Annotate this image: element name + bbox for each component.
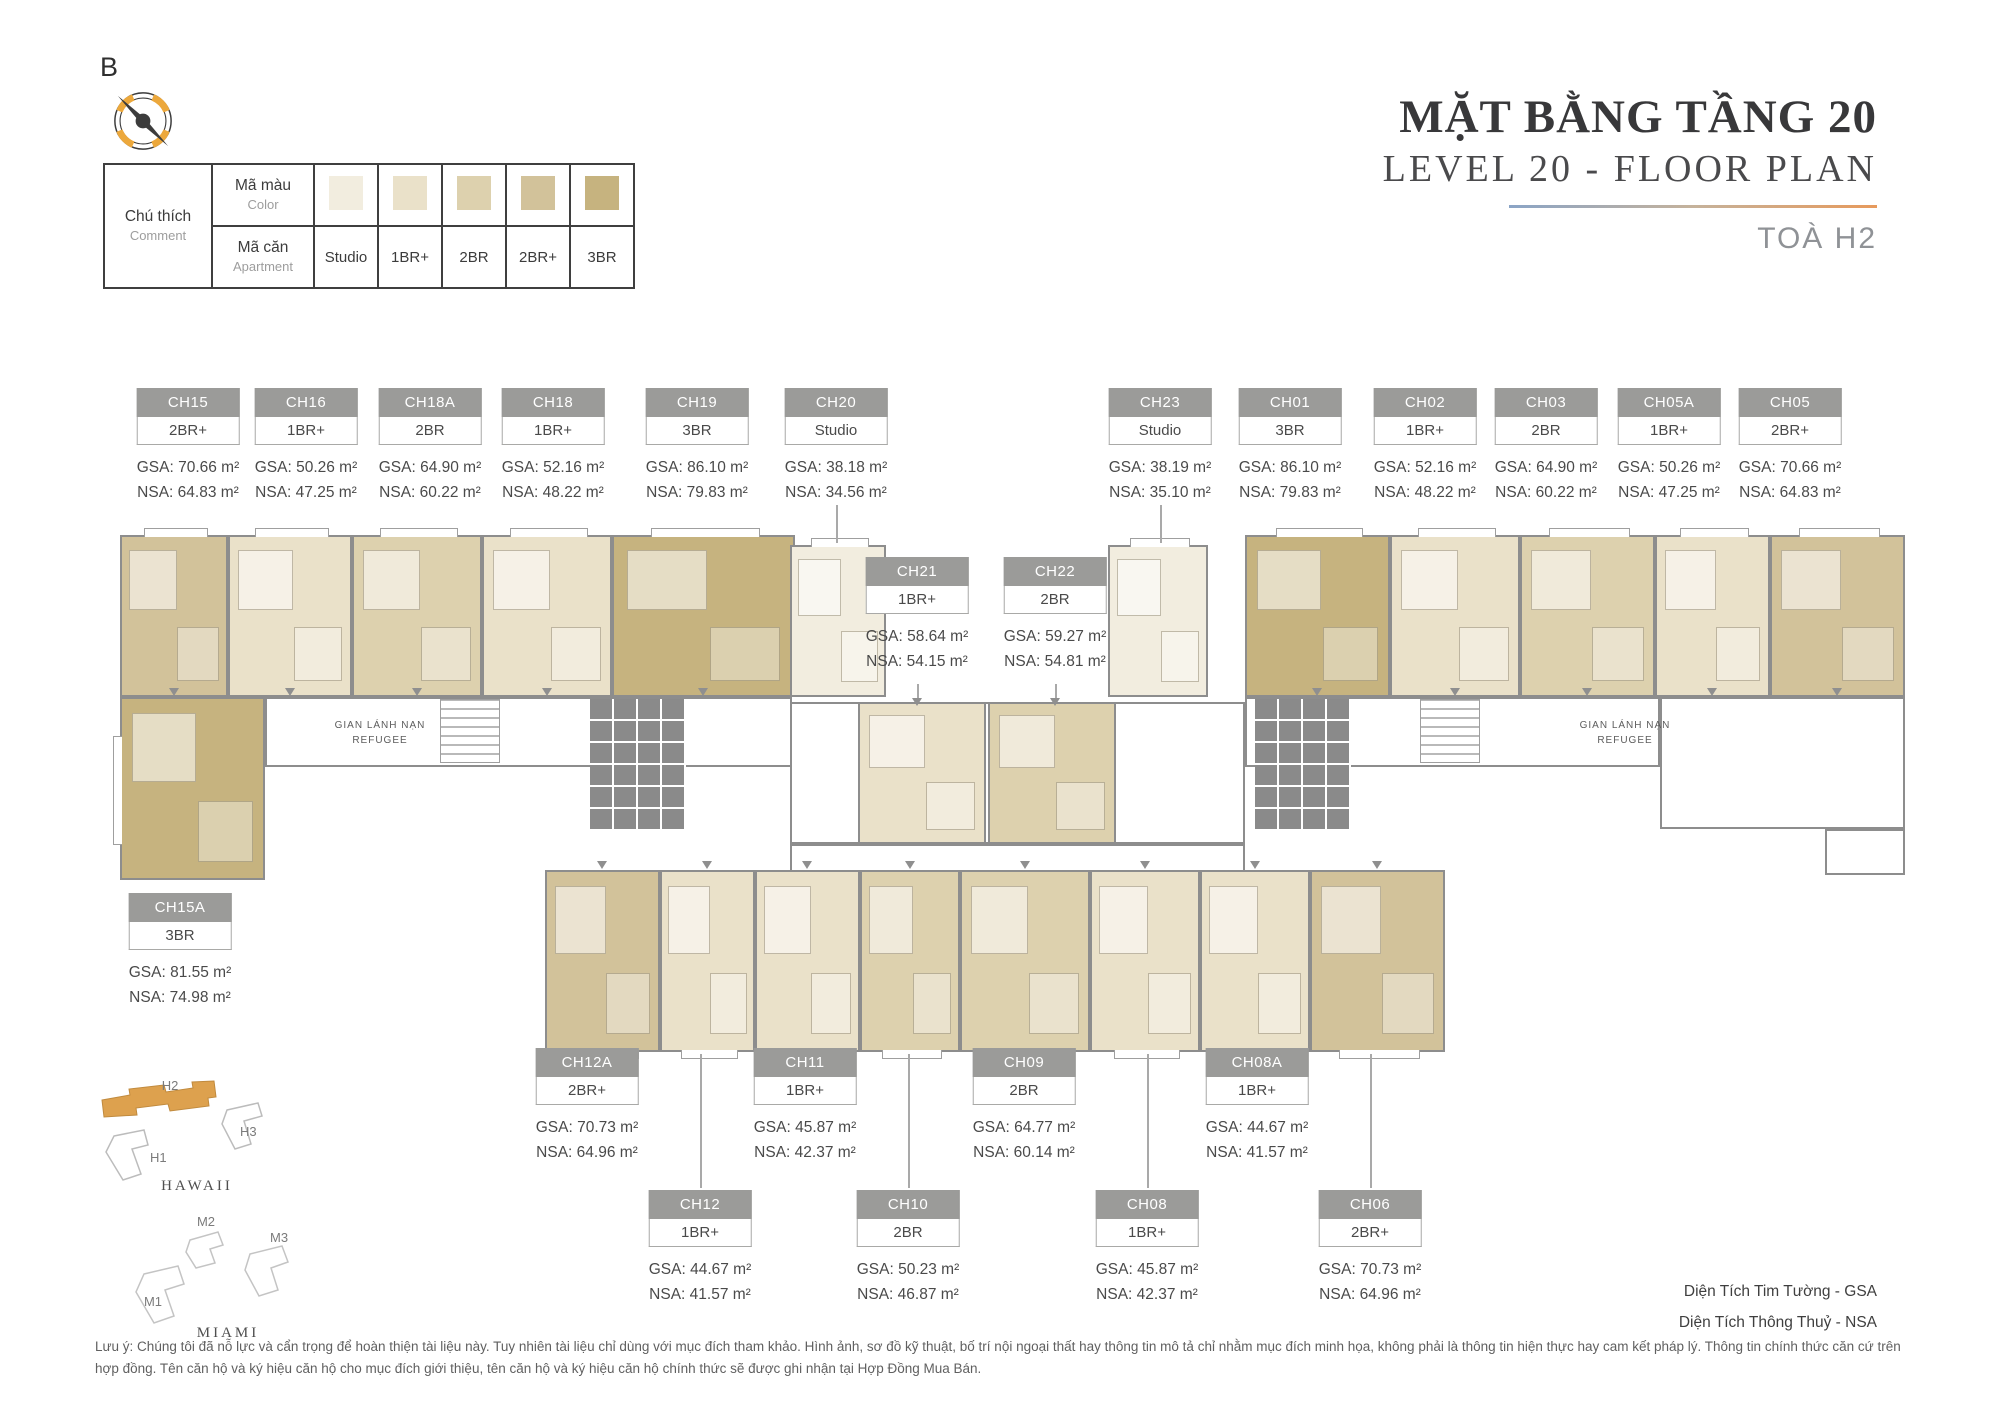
balcony bbox=[1680, 528, 1749, 537]
legend-swatch-studio bbox=[314, 164, 378, 226]
elevator-core bbox=[590, 699, 686, 829]
unit-id-badge: CH15A bbox=[129, 893, 232, 922]
building-m2-outline bbox=[186, 1232, 223, 1268]
balcony bbox=[510, 528, 588, 537]
entry-arrow bbox=[412, 688, 422, 696]
color-swatch bbox=[521, 176, 555, 210]
unit-id-badge: CH18 bbox=[502, 388, 605, 417]
unit-type-label: 2BR+ bbox=[137, 417, 240, 445]
unit-type-label: 1BR+ bbox=[866, 586, 969, 614]
legend-table: Chú thích Comment Mã màu Color Mã căn Ap… bbox=[103, 163, 635, 289]
unit-type-label: 2BR bbox=[857, 1219, 960, 1247]
legend-color-header: Mã màu Color bbox=[212, 164, 314, 226]
unit-gsa: GSA: 38.18 m² bbox=[785, 456, 888, 481]
unit-gsa: GSA: 44.67 m² bbox=[649, 1258, 752, 1283]
unit-id-badge: CH22 bbox=[1004, 557, 1107, 586]
entry-arrow bbox=[542, 688, 552, 696]
gsa-note: Diện Tích Tim Tường - GSA bbox=[1679, 1276, 1877, 1307]
unit-gsa: GSA: 50.23 m² bbox=[857, 1258, 960, 1283]
unit-tag-CH01: CH013BRGSA: 86.10 m²NSA: 79.83 m² bbox=[1239, 388, 1342, 506]
unit-tag-CH15: CH152BR+GSA: 70.66 m²NSA: 64.83 m² bbox=[137, 388, 240, 506]
unit-tag-CH05A: CH05A1BR+GSA: 50.26 m²NSA: 47.25 m² bbox=[1618, 388, 1721, 506]
svg-text:H1: H1 bbox=[150, 1150, 167, 1165]
legend-type-2brplus: 2BR+ bbox=[506, 226, 570, 288]
unit-nsa: NSA: 41.57 m² bbox=[649, 1283, 752, 1308]
unit-gsa: GSA: 70.66 m² bbox=[137, 456, 240, 481]
unit-tag-CH09: CH092BRGSA: 64.77 m²NSA: 60.14 m² bbox=[973, 1048, 1076, 1166]
nsa-note: Diện Tích Thông Thuỷ - NSA bbox=[1679, 1307, 1877, 1338]
balcony bbox=[1799, 528, 1880, 537]
balcony bbox=[113, 736, 122, 846]
legend-type-1br: 1BR+ bbox=[378, 226, 442, 288]
unit-area-values: GSA: 70.73 m²NSA: 64.96 m² bbox=[536, 1116, 639, 1166]
unit-id-badge: CH05A bbox=[1618, 388, 1721, 417]
entry-arrow bbox=[1832, 688, 1842, 696]
leader-line bbox=[1160, 505, 1162, 543]
corridor bbox=[790, 844, 1245, 872]
stairs bbox=[1420, 699, 1480, 763]
title-divider bbox=[1509, 205, 1877, 208]
building-h2-highlight bbox=[102, 1081, 216, 1117]
unit-tag-CH23: CH23StudioGSA: 38.19 m²NSA: 35.10 m² bbox=[1109, 388, 1212, 506]
entry-arrow bbox=[597, 861, 607, 869]
unit-tag-CH11: CH111BR+GSA: 45.87 m²NSA: 42.37 m² bbox=[754, 1048, 857, 1166]
unit-tag-CH10: CH102BRGSA: 50.23 m²NSA: 46.87 m² bbox=[857, 1190, 960, 1308]
entry-arrow bbox=[698, 688, 708, 696]
entry-arrow bbox=[1312, 688, 1322, 696]
color-swatch bbox=[329, 176, 363, 210]
balcony bbox=[255, 528, 329, 537]
balcony bbox=[1418, 528, 1496, 537]
apartment-CH03 bbox=[1520, 535, 1655, 697]
unit-id-badge: CH05 bbox=[1739, 388, 1842, 417]
page-title: MẶT BẰNG TẦNG 20 bbox=[1383, 92, 1877, 144]
unit-tag-CH21: CH211BR+GSA: 58.64 m²NSA: 54.15 m² bbox=[866, 557, 969, 675]
unit-id-badge: CH06 bbox=[1319, 1190, 1422, 1219]
unit-tag-CH03: CH032BRGSA: 64.90 m²NSA: 60.22 m² bbox=[1495, 388, 1598, 506]
unit-area-values: GSA: 86.10 m²NSA: 79.83 m² bbox=[646, 456, 749, 506]
unit-tag-CH18A: CH18A2BRGSA: 64.90 m²NSA: 60.22 m² bbox=[379, 388, 482, 506]
unit-type-label: 1BR+ bbox=[1096, 1219, 1199, 1247]
unit-area-values: GSA: 45.87 m²NSA: 42.37 m² bbox=[1096, 1258, 1199, 1308]
svg-text:H2: H2 bbox=[162, 1078, 179, 1093]
unit-type-label: Studio bbox=[1109, 417, 1212, 445]
unit-tag-CH12A: CH12A2BR+GSA: 70.73 m²NSA: 64.96 m² bbox=[536, 1048, 639, 1166]
unit-gsa: GSA: 38.19 m² bbox=[1109, 456, 1212, 481]
color-swatch bbox=[393, 176, 427, 210]
entry-arrow bbox=[912, 698, 922, 706]
terrace-area bbox=[1660, 697, 1905, 829]
unit-area-values: GSA: 70.66 m²NSA: 64.83 m² bbox=[137, 456, 240, 506]
unit-nsa: NSA: 79.83 m² bbox=[1239, 481, 1342, 506]
apartment-CH16 bbox=[228, 535, 352, 697]
entry-arrow bbox=[1450, 688, 1460, 696]
unit-area-values: GSA: 58.64 m²NSA: 54.15 m² bbox=[866, 625, 969, 675]
unit-tag-CH22: CH222BRGSA: 59.27 m²NSA: 54.81 m² bbox=[1004, 557, 1107, 675]
unit-nsa: NSA: 54.15 m² bbox=[866, 650, 969, 675]
unit-type-label: 2BR+ bbox=[536, 1077, 639, 1105]
unit-id-badge: CH08 bbox=[1096, 1190, 1199, 1219]
balcony bbox=[380, 528, 458, 537]
unit-type-label: 1BR+ bbox=[255, 417, 358, 445]
unit-gsa: GSA: 52.16 m² bbox=[1374, 456, 1477, 481]
unit-nsa: NSA: 64.96 m² bbox=[536, 1141, 639, 1166]
legend-comment-cell: Chú thích Comment bbox=[104, 164, 212, 288]
unit-tag-CH19: CH193BRGSA: 86.10 m²NSA: 79.83 m² bbox=[646, 388, 749, 506]
apartment-CH05 bbox=[1770, 535, 1905, 697]
unit-area-values: GSA: 38.19 m²NSA: 35.10 m² bbox=[1109, 456, 1212, 506]
balcony bbox=[882, 1050, 942, 1059]
unit-tag-CH15A: CH15A3BRGSA: 81.55 m²NSA: 74.98 m² bbox=[129, 893, 232, 1011]
unit-nsa: NSA: 42.37 m² bbox=[754, 1141, 857, 1166]
title-block: MẶT BẰNG TẦNG 20 LEVEL 20 - FLOOR PLAN T… bbox=[1383, 92, 1877, 256]
unit-id-badge: CH10 bbox=[857, 1190, 960, 1219]
unit-type-label: 1BR+ bbox=[1206, 1077, 1309, 1105]
apartment-CH10 bbox=[860, 870, 960, 1052]
unit-gsa: GSA: 86.10 m² bbox=[646, 456, 749, 481]
unit-gsa: GSA: 50.26 m² bbox=[1618, 456, 1721, 481]
apartment-CH08A bbox=[1200, 870, 1310, 1052]
entry-arrow bbox=[1582, 688, 1592, 696]
leader-line bbox=[1370, 1054, 1372, 1188]
unit-nsa: NSA: 54.81 m² bbox=[1004, 650, 1107, 675]
legend-type-2br: 2BR bbox=[442, 226, 506, 288]
unit-type-label: 1BR+ bbox=[502, 417, 605, 445]
unit-id-badge: CH12 bbox=[649, 1190, 752, 1219]
unit-id-badge: CH15 bbox=[137, 388, 240, 417]
unit-id-badge: CH03 bbox=[1495, 388, 1598, 417]
unit-id-badge: CH21 bbox=[866, 557, 969, 586]
unit-id-badge: CH16 bbox=[255, 388, 358, 417]
svg-text:H3: H3 bbox=[240, 1124, 257, 1139]
unit-id-badge: CH11 bbox=[754, 1048, 857, 1077]
unit-nsa: NSA: 64.83 m² bbox=[137, 481, 240, 506]
unit-area-values: GSA: 50.23 m²NSA: 46.87 m² bbox=[857, 1258, 960, 1308]
apartment-CH11 bbox=[755, 870, 860, 1052]
unit-type-label: 3BR bbox=[129, 922, 232, 950]
north-label: B bbox=[100, 52, 118, 83]
unit-area-values: GSA: 70.73 m²NSA: 64.96 m² bbox=[1319, 1258, 1422, 1308]
unit-nsa: NSA: 42.37 m² bbox=[1096, 1283, 1199, 1308]
legend-swatch-2br bbox=[442, 164, 506, 226]
building-m3-outline bbox=[245, 1246, 288, 1296]
page-subtitle: LEVEL 20 - FLOOR PLAN bbox=[1383, 144, 1877, 195]
unit-tag-CH12: CH121BR+GSA: 44.67 m²NSA: 41.57 m² bbox=[649, 1190, 752, 1308]
unit-gsa: GSA: 70.73 m² bbox=[536, 1116, 639, 1141]
unit-tag-CH20: CH20StudioGSA: 38.18 m²NSA: 34.56 m² bbox=[785, 388, 888, 506]
unit-id-badge: CH01 bbox=[1239, 388, 1342, 417]
apartment-CH09 bbox=[960, 870, 1090, 1052]
entry-arrow bbox=[285, 688, 295, 696]
svg-text:M3: M3 bbox=[270, 1230, 288, 1245]
legend-type-3br: 3BR bbox=[570, 226, 634, 288]
unit-type-label: 2BR bbox=[1495, 417, 1598, 445]
unit-gsa: GSA: 58.64 m² bbox=[866, 625, 969, 650]
unit-tag-CH02: CH021BR+GSA: 52.16 m²NSA: 48.22 m² bbox=[1374, 388, 1477, 506]
unit-type-label: Studio bbox=[785, 417, 888, 445]
balcony bbox=[1339, 1050, 1420, 1059]
apartment-CH05A bbox=[1655, 535, 1770, 697]
apartment-CH06 bbox=[1310, 870, 1445, 1052]
unit-nsa: NSA: 34.56 m² bbox=[785, 481, 888, 506]
balcony bbox=[144, 528, 209, 537]
unit-gsa: GSA: 64.90 m² bbox=[379, 456, 482, 481]
entry-arrow bbox=[802, 861, 812, 869]
unit-nsa: NSA: 46.87 m² bbox=[857, 1283, 960, 1308]
unit-nsa: NSA: 35.10 m² bbox=[1109, 481, 1212, 506]
unit-type-label: 3BR bbox=[1239, 417, 1342, 445]
apartment-CH18 bbox=[482, 535, 612, 697]
apartment-CH12A bbox=[545, 870, 660, 1052]
unit-id-badge: CH09 bbox=[973, 1048, 1076, 1077]
apartment-CH15 bbox=[120, 535, 228, 697]
unit-area-values: GSA: 64.90 m²NSA: 60.22 m² bbox=[379, 456, 482, 506]
unit-gsa: GSA: 44.67 m² bbox=[1206, 1116, 1309, 1141]
unit-type-label: 1BR+ bbox=[1374, 417, 1477, 445]
unit-id-badge: CH23 bbox=[1109, 388, 1212, 417]
unit-area-values: GSA: 52.16 m²NSA: 48.22 m² bbox=[502, 456, 605, 506]
unit-area-values: GSA: 38.18 m²NSA: 34.56 m² bbox=[785, 456, 888, 506]
leader-line bbox=[700, 1054, 702, 1188]
leader-line bbox=[908, 1054, 910, 1188]
legend-swatch-1br bbox=[378, 164, 442, 226]
unit-tag-CH08: CH081BR+GSA: 45.87 m²NSA: 42.37 m² bbox=[1096, 1190, 1199, 1308]
legend-swatch-2brplus bbox=[506, 164, 570, 226]
minimap-hawaii: H2 H3 H1 HAWAII bbox=[92, 1078, 287, 1203]
unit-nsa: NSA: 48.22 m² bbox=[1374, 481, 1477, 506]
unit-nsa: NSA: 79.83 m² bbox=[646, 481, 749, 506]
unit-type-label: 2BR bbox=[973, 1077, 1076, 1105]
unit-nsa: NSA: 74.98 m² bbox=[129, 986, 232, 1011]
apartment-CH08 bbox=[1090, 870, 1200, 1052]
balcony bbox=[1276, 528, 1363, 537]
svg-text:M1: M1 bbox=[144, 1294, 162, 1309]
unit-nsa: NSA: 60.22 m² bbox=[379, 481, 482, 506]
unit-tag-CH08A: CH08A1BR+GSA: 44.67 m²NSA: 41.57 m² bbox=[1206, 1048, 1309, 1166]
unit-area-values: GSA: 52.16 m²NSA: 48.22 m² bbox=[1374, 456, 1477, 506]
unit-type-label: 2BR bbox=[379, 417, 482, 445]
unit-area-values: GSA: 50.26 m²NSA: 47.25 m² bbox=[255, 456, 358, 506]
svg-text:M2: M2 bbox=[197, 1214, 215, 1229]
unit-gsa: GSA: 52.16 m² bbox=[502, 456, 605, 481]
unit-gsa: GSA: 70.66 m² bbox=[1739, 456, 1842, 481]
svg-text:HAWAII: HAWAII bbox=[161, 1178, 233, 1194]
apartment-CH01 bbox=[1245, 535, 1390, 697]
minimap-miami: M2 M3 M1 MIAMI bbox=[110, 1212, 325, 1352]
apartment-CH21 bbox=[858, 702, 986, 844]
compass-icon bbox=[106, 84, 180, 158]
unit-nsa: NSA: 64.96 m² bbox=[1319, 1283, 1422, 1308]
unit-gsa: GSA: 64.77 m² bbox=[973, 1116, 1076, 1141]
unit-id-badge: CH20 bbox=[785, 388, 888, 417]
unit-gsa: GSA: 59.27 m² bbox=[1004, 625, 1107, 650]
elevator-core bbox=[1255, 699, 1351, 829]
apartment-CH15A bbox=[120, 697, 265, 880]
refugee-area-label-right: GIAN LÁNH NẠN REFUGEE bbox=[1545, 718, 1705, 748]
apartment-CH22 bbox=[988, 702, 1116, 844]
entry-arrow bbox=[702, 861, 712, 869]
unit-gsa: GSA: 70.73 m² bbox=[1319, 1258, 1422, 1283]
unit-area-values: GSA: 44.67 m²NSA: 41.57 m² bbox=[649, 1258, 752, 1308]
unit-tag-CH16: CH161BR+GSA: 50.26 m²NSA: 47.25 m² bbox=[255, 388, 358, 506]
balcony bbox=[811, 538, 869, 547]
unit-type-label: 2BR bbox=[1004, 586, 1107, 614]
unit-area-values: GSA: 86.10 m²NSA: 79.83 m² bbox=[1239, 456, 1342, 506]
balcony bbox=[651, 528, 761, 537]
unit-gsa: GSA: 45.87 m² bbox=[754, 1116, 857, 1141]
unit-tag-CH18: CH181BR+GSA: 52.16 m²NSA: 48.22 m² bbox=[502, 388, 605, 506]
unit-type-label: 1BR+ bbox=[754, 1077, 857, 1105]
unit-id-badge: CH19 bbox=[646, 388, 749, 417]
entry-arrow bbox=[1707, 688, 1717, 696]
unit-area-values: GSA: 81.55 m²NSA: 74.98 m² bbox=[129, 961, 232, 1011]
unit-gsa: GSA: 64.90 m² bbox=[1495, 456, 1598, 481]
apartment-CH23 bbox=[1108, 545, 1208, 697]
entry-arrow bbox=[1020, 861, 1030, 869]
unit-gsa: GSA: 81.55 m² bbox=[129, 961, 232, 986]
unit-type-label: 1BR+ bbox=[1618, 417, 1721, 445]
unit-nsa: NSA: 47.25 m² bbox=[1618, 481, 1721, 506]
floor-plan-page: B Chú thích Comment Mã màu Color bbox=[0, 0, 2000, 1414]
unit-tag-CH05: CH052BR+GSA: 70.66 m²NSA: 64.83 m² bbox=[1739, 388, 1842, 506]
unit-area-values: GSA: 50.26 m²NSA: 47.25 m² bbox=[1618, 456, 1721, 506]
unit-area-values: GSA: 44.67 m²NSA: 41.57 m² bbox=[1206, 1116, 1309, 1166]
unit-id-badge: CH18A bbox=[379, 388, 482, 417]
entry-arrow bbox=[169, 688, 179, 696]
unit-nsa: NSA: 64.83 m² bbox=[1739, 481, 1842, 506]
building-name: TOÀ H2 bbox=[1383, 222, 1877, 256]
unit-gsa: GSA: 86.10 m² bbox=[1239, 456, 1342, 481]
leader-line bbox=[836, 505, 838, 543]
terrace-area bbox=[1825, 829, 1905, 875]
disclaimer-text: Lưu ý: Chúng tôi đã nỗ lực và cẩn trọng … bbox=[95, 1336, 1907, 1381]
entry-arrow bbox=[905, 861, 915, 869]
unit-area-values: GSA: 64.77 m²NSA: 60.14 m² bbox=[973, 1116, 1076, 1166]
unit-nsa: NSA: 60.14 m² bbox=[973, 1141, 1076, 1166]
unit-type-label: 2BR+ bbox=[1319, 1219, 1422, 1247]
unit-id-badge: CH02 bbox=[1374, 388, 1477, 417]
apartment-CH02 bbox=[1390, 535, 1520, 697]
leader-line bbox=[1147, 1054, 1149, 1188]
unit-type-label: 3BR bbox=[646, 417, 749, 445]
unit-nsa: NSA: 60.22 m² bbox=[1495, 481, 1598, 506]
apartment-CH12 bbox=[660, 870, 755, 1052]
legend-swatch-3br bbox=[570, 164, 634, 226]
unit-type-label: 2BR+ bbox=[1739, 417, 1842, 445]
entry-arrow bbox=[1250, 861, 1260, 869]
unit-type-label: 1BR+ bbox=[649, 1219, 752, 1247]
apartment-CH19 bbox=[612, 535, 795, 697]
balcony bbox=[681, 1050, 738, 1059]
unit-area-values: GSA: 59.27 m²NSA: 54.81 m² bbox=[1004, 625, 1107, 675]
balcony bbox=[1549, 528, 1630, 537]
unit-area-values: GSA: 70.66 m²NSA: 64.83 m² bbox=[1739, 456, 1842, 506]
apartment-CH18A bbox=[352, 535, 482, 697]
building-h1-outline bbox=[106, 1130, 148, 1180]
unit-nsa: NSA: 41.57 m² bbox=[1206, 1141, 1309, 1166]
area-abbreviation-notes: Diện Tích Tim Tường - GSA Diện Tích Thôn… bbox=[1679, 1276, 1877, 1338]
legend-type-studio: Studio bbox=[314, 226, 378, 288]
unit-nsa: NSA: 47.25 m² bbox=[255, 481, 358, 506]
unit-id-badge: CH12A bbox=[536, 1048, 639, 1077]
refugee-area-label-left: GIAN LÁNH NẠN REFUGEE bbox=[300, 718, 460, 748]
color-swatch bbox=[457, 176, 491, 210]
unit-nsa: NSA: 48.22 m² bbox=[502, 481, 605, 506]
unit-tag-CH06: CH062BR+GSA: 70.73 m²NSA: 64.96 m² bbox=[1319, 1190, 1422, 1308]
unit-id-badge: CH08A bbox=[1206, 1048, 1309, 1077]
entry-arrow bbox=[1140, 861, 1150, 869]
color-swatch bbox=[585, 176, 619, 210]
entry-arrow bbox=[1372, 861, 1382, 869]
unit-gsa: GSA: 45.87 m² bbox=[1096, 1258, 1199, 1283]
unit-area-values: GSA: 45.87 m²NSA: 42.37 m² bbox=[754, 1116, 857, 1166]
unit-gsa: GSA: 50.26 m² bbox=[255, 456, 358, 481]
unit-area-values: GSA: 64.90 m²NSA: 60.22 m² bbox=[1495, 456, 1598, 506]
legend-apartment-header: Mã căn Apartment bbox=[212, 226, 314, 288]
entry-arrow bbox=[1050, 698, 1060, 706]
